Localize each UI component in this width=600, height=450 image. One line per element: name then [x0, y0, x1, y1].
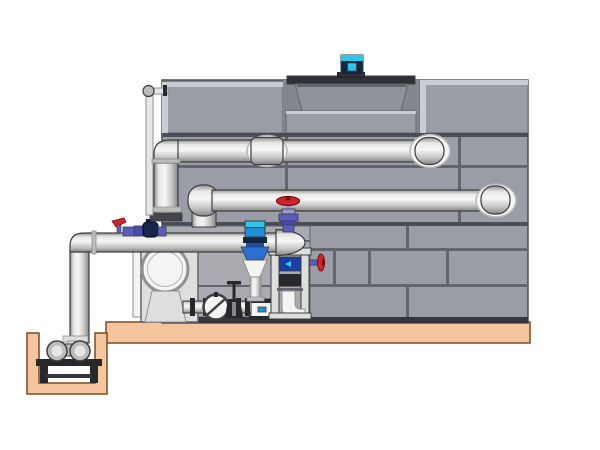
actuator-body	[245, 227, 265, 237]
pipe-coupling	[251, 138, 283, 165]
motor-cap	[341, 55, 363, 61]
fan-cowl	[295, 84, 408, 111]
motor-window	[348, 63, 357, 71]
pump-pedestal	[145, 291, 186, 322]
top-right-panel	[420, 80, 528, 133]
top-left-panel	[162, 82, 283, 133]
cooling-tower-illustration	[0, 0, 600, 450]
actuator-cap	[245, 221, 265, 228]
illustration-canvas	[0, 0, 600, 450]
riser-flange	[150, 213, 182, 221]
feed-pump	[143, 222, 158, 237]
fan-motor	[337, 55, 365, 78]
overflow-elbow-cap	[143, 86, 154, 97]
tower-return-pipe	[152, 135, 450, 168]
supply-inlet-elbow	[481, 186, 510, 214]
return-inlet-elbow	[415, 138, 444, 165]
riser-pipe	[150, 156, 182, 221]
cooling-tower-casing	[162, 55, 528, 323]
sump-riser-pipe	[70, 250, 89, 343]
